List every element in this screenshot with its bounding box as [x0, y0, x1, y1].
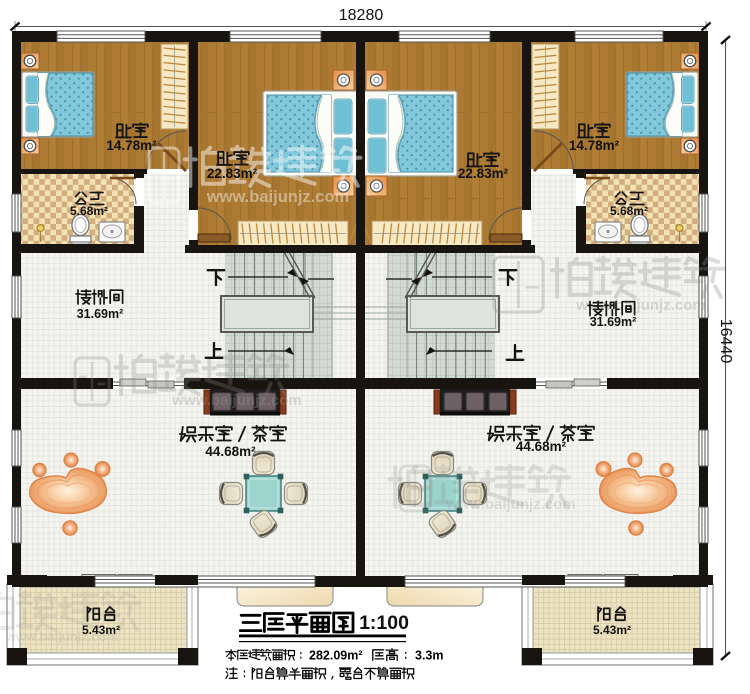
svg-text:31.69m²: 31.69m²: [590, 315, 637, 329]
svg-text:www.baijunjz.com: www.baijunjz.com: [171, 392, 301, 409]
svg-text:16440: 16440: [717, 319, 734, 364]
svg-text:44.68m²: 44.68m²: [516, 439, 567, 454]
svg-text:3.3m: 3.3m: [415, 649, 444, 663]
svg-text:1:100: 1:100: [359, 612, 409, 634]
svg-text:22.83m²: 22.83m²: [458, 166, 509, 181]
svg-text:5.68m²: 5.68m²: [610, 204, 648, 218]
svg-text:5.43m²: 5.43m²: [593, 623, 631, 637]
svg-text:18280: 18280: [339, 7, 384, 24]
svg-text:www.baijunjz.com: www.baijunjz.com: [445, 496, 575, 513]
svg-text:22.83m²: 22.83m²: [207, 166, 258, 181]
svg-text:www.baijunjz.com: www.baijunjz.com: [206, 188, 349, 206]
svg-text:44.68m²: 44.68m²: [205, 444, 256, 459]
svg-text:14.78m²: 14.78m²: [106, 138, 157, 153]
svg-text:5.43m²: 5.43m²: [82, 623, 120, 637]
svg-text:14.78m²: 14.78m²: [569, 138, 620, 153]
svg-text:31.69m²: 31.69m²: [77, 307, 124, 321]
svg-text:282.09m²: 282.09m²: [309, 649, 363, 663]
svg-text:5.68m²: 5.68m²: [70, 204, 108, 218]
